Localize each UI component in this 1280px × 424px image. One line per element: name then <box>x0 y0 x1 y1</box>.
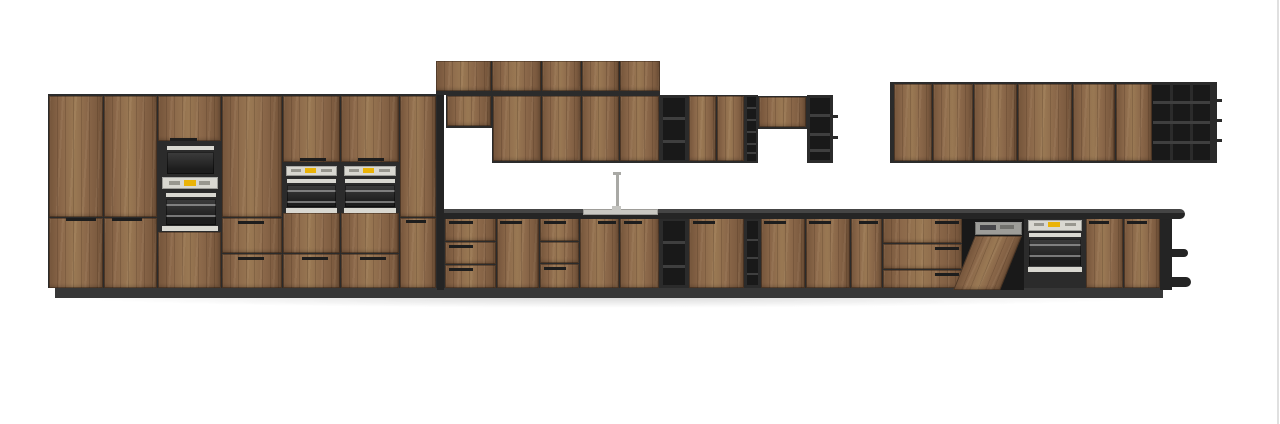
oven-buttons <box>349 169 359 172</box>
wall-cab-b-door[interactable] <box>542 96 581 161</box>
wall-cab-b-door[interactable] <box>620 96 659 161</box>
handle-groove <box>859 221 878 224</box>
wall-cab-a-door[interactable] <box>447 96 491 126</box>
base-door[interactable] <box>806 218 850 288</box>
shelf <box>747 273 758 275</box>
handle-groove <box>544 267 566 270</box>
shelf <box>1153 141 1210 144</box>
handle-groove <box>1127 221 1147 224</box>
handle-groove <box>809 221 831 224</box>
tower-oven-glass <box>166 199 216 225</box>
handle-groove <box>170 138 197 141</box>
handle-groove <box>238 221 264 224</box>
shelf <box>810 114 830 117</box>
dishwasher-panel-slot <box>980 225 996 230</box>
base-door[interactable] <box>761 218 805 288</box>
base-door[interactable] <box>851 218 882 288</box>
handle-groove <box>624 221 642 224</box>
wall-top-door[interactable] <box>582 61 619 91</box>
tower-oven-handle <box>166 193 216 197</box>
tall-door-lower-1[interactable] <box>49 218 103 288</box>
tall-door-lower-4[interactable] <box>400 218 436 288</box>
wall-cab-d-door[interactable] <box>759 97 806 127</box>
oven-handle <box>287 179 336 183</box>
handle-groove <box>358 158 384 161</box>
side-shelf-tab <box>833 136 838 139</box>
handle-groove <box>693 221 715 224</box>
handle-groove <box>360 257 386 260</box>
shelf <box>663 140 685 143</box>
wall-cab-c-door[interactable] <box>717 96 744 161</box>
wall-open-shelf-interior <box>663 98 685 160</box>
wall-cab-b-door[interactable] <box>582 96 619 161</box>
handle-groove <box>500 221 522 224</box>
shelf <box>747 107 756 109</box>
compact-oven-glass <box>167 152 214 174</box>
dishwasher-buttons <box>1000 225 1014 229</box>
shelf <box>1153 101 1210 104</box>
handle-groove <box>449 221 473 224</box>
side-shelf-tab <box>1215 119 1222 122</box>
shelf <box>747 257 758 259</box>
oven-buttons <box>199 181 210 185</box>
tall-door-lower-2[interactable] <box>104 218 157 288</box>
wall-cab-b-door[interactable] <box>493 96 541 161</box>
floor-shadow <box>60 297 1163 308</box>
handle-groove <box>449 268 473 271</box>
oven-glass <box>345 185 395 207</box>
oven-glass <box>287 185 336 207</box>
oven-buttons <box>1065 223 1076 226</box>
compact-oven-handle <box>167 146 214 150</box>
oven-display <box>1048 222 1060 227</box>
oven-buttons <box>321 169 332 172</box>
side-shelf-tab <box>1215 99 1222 102</box>
handle-groove <box>935 273 959 276</box>
shelf <box>747 152 756 154</box>
sink-base-door[interactable] <box>620 218 659 288</box>
base-door[interactable] <box>497 218 539 288</box>
base-drawer[interactable] <box>540 242 579 263</box>
base-door[interactable] <box>1124 218 1160 288</box>
end-shelf <box>1162 277 1191 287</box>
shelf <box>747 239 758 241</box>
handle-groove <box>449 245 473 248</box>
oven-display <box>363 168 374 173</box>
kitchen-canvas <box>0 0 1280 424</box>
handle-groove <box>544 221 566 224</box>
handle-groove <box>300 158 326 161</box>
wall-right-door[interactable] <box>1018 84 1072 161</box>
shelf <box>663 265 685 268</box>
shelf <box>663 117 685 120</box>
oven-left-drawer-upper[interactable] <box>283 213 340 253</box>
wall-top-door[interactable] <box>542 61 581 91</box>
handle-groove <box>112 218 142 221</box>
wall-right-door[interactable] <box>894 84 932 161</box>
handle-groove <box>302 257 328 260</box>
canvas-right-edge <box>1277 0 1279 424</box>
handle-groove <box>935 247 959 250</box>
shelf <box>810 133 830 136</box>
wall-right-door[interactable] <box>1116 84 1152 161</box>
handle-groove <box>66 218 96 221</box>
faucet-neck[interactable] <box>616 174 619 208</box>
wall-right-door[interactable] <box>1073 84 1115 161</box>
sink-base-door[interactable] <box>580 218 619 288</box>
oven-buttons <box>169 181 180 185</box>
handle-groove <box>1089 221 1109 224</box>
tall-door-upper-4[interactable] <box>400 96 436 217</box>
oven-handle <box>345 179 395 183</box>
handle-groove <box>764 221 786 224</box>
tall-door-upper-1[interactable] <box>49 96 103 217</box>
handle-groove <box>935 221 959 224</box>
handle-groove <box>406 220 426 223</box>
oven-display <box>305 168 316 173</box>
oven-display <box>184 180 196 186</box>
shelf <box>810 149 830 152</box>
tower-oven-trim <box>162 226 218 231</box>
oven-trim <box>344 208 396 213</box>
tall-door-upper-3[interactable] <box>222 96 282 217</box>
handle-groove <box>598 221 616 224</box>
shelf <box>747 143 756 145</box>
oven-right-drawer-upper[interactable] <box>341 213 399 253</box>
oven-tower-lower-panel[interactable] <box>158 232 221 288</box>
tall-run-side-panel[interactable] <box>437 94 444 290</box>
base-door[interactable] <box>689 218 744 288</box>
side-shelf-tab <box>833 115 838 118</box>
oven-tower-top-door[interactable] <box>158 96 221 141</box>
shelf <box>663 241 685 244</box>
wall-top-door[interactable] <box>436 61 491 91</box>
wall-top-door[interactable] <box>620 61 660 91</box>
base-cubby-interior[interactable] <box>747 221 758 285</box>
handle-groove <box>238 257 264 260</box>
countertop[interactable] <box>444 209 1185 219</box>
oven-handle <box>1029 233 1081 237</box>
base-door[interactable] <box>1086 218 1123 288</box>
oven-wall-door-left[interactable] <box>283 96 340 162</box>
faucet-base <box>612 206 621 210</box>
oven-buttons <box>291 169 301 172</box>
oven-trim <box>286 208 337 213</box>
wall-right-door[interactable] <box>933 84 973 161</box>
side-shelf-tab <box>1215 139 1222 142</box>
oven-buttons <box>379 169 390 172</box>
wall-top-door[interactable] <box>492 61 541 91</box>
oven-trim <box>1028 267 1082 272</box>
oven-wall-door-right[interactable] <box>341 96 399 162</box>
oven-buttons <box>1034 223 1044 226</box>
shelf <box>1153 121 1210 124</box>
tall-door-upper-2[interactable] <box>104 96 157 217</box>
wall-right-door[interactable] <box>974 84 1017 161</box>
oven-glass <box>1029 239 1081 267</box>
end-shelf <box>1162 249 1188 257</box>
shelf <box>747 131 756 133</box>
wall-cab-c-door[interactable] <box>689 96 716 161</box>
base-open-shelf-interior[interactable] <box>663 221 685 285</box>
shelf <box>747 119 756 121</box>
